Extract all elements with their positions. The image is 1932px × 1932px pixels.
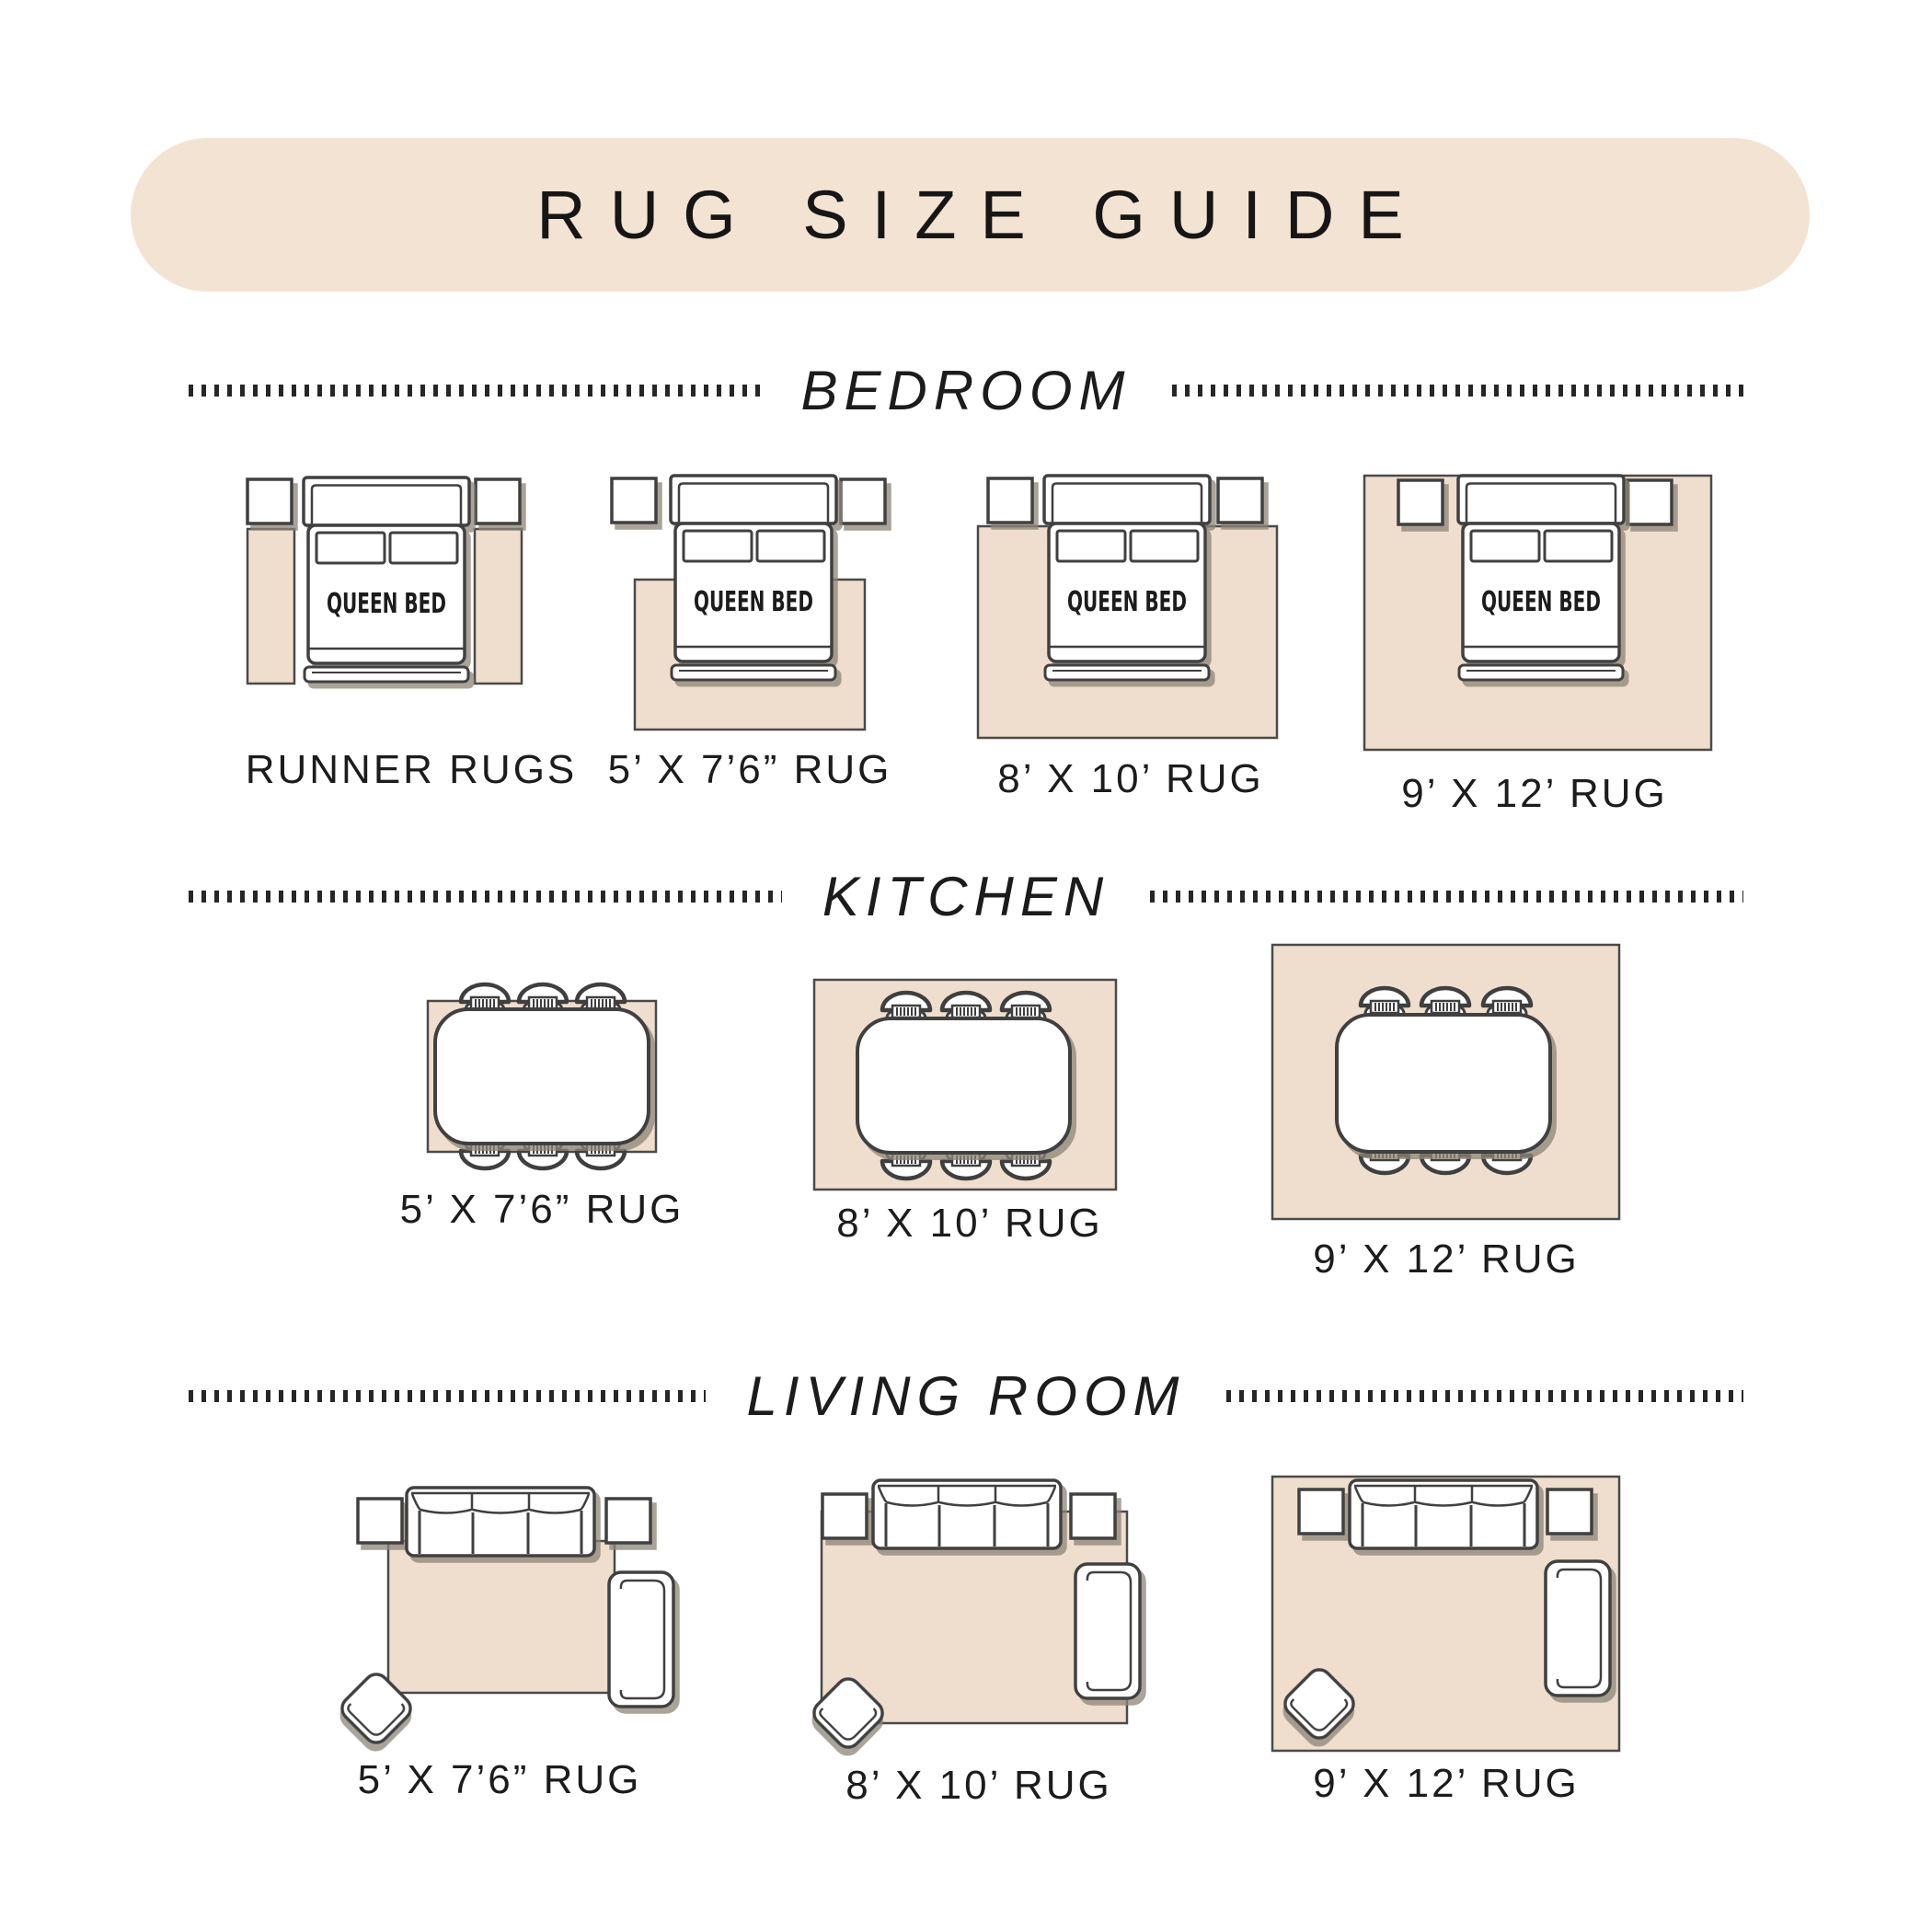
page-title: RUG SIZE GUIDE: [512, 176, 1427, 254]
runner-rug-left: [247, 529, 294, 684]
sofa-icon: [873, 1480, 1061, 1548]
bedroom-5x76-rug-diagram: [598, 465, 902, 741]
runner-rug-right: [475, 529, 522, 684]
bedroom-8x10-rug-diagram: [971, 465, 1293, 750]
kitchen-5x76-rug-diagram: [405, 975, 681, 1187]
rug-size-label: RUNNER RUGS: [246, 747, 578, 793]
kitchen-8x10-rug-diagram: [800, 957, 1132, 1205]
rug-size-label: 5’ X 7’6” RUG: [400, 1187, 684, 1233]
side-table-icon: [358, 1499, 402, 1543]
rug-size-guide-infographic: QUEEN BED: [0, 0, 1932, 1932]
living-room-5x76-rug-diagram: [313, 1467, 699, 1776]
chaise-chair-icon: [609, 1572, 673, 1707]
nightstand-icon: [612, 478, 656, 523]
rug-size-label: 9’ X 12’ RUG: [1313, 1236, 1580, 1282]
chaise-chair-icon: [1546, 1561, 1610, 1696]
dotted-divider-left: [189, 385, 760, 397]
sofa-icon: [1350, 1480, 1537, 1548]
rug-size-label: 5’ X 7’6” RUG: [358, 1757, 642, 1803]
section-title-bedroom: BEDROOM: [800, 359, 1131, 422]
nightstand-icon: [476, 479, 520, 523]
rug-size-label: 8’ X 10’ RUG: [997, 756, 1264, 802]
sofa-icon: [407, 1488, 594, 1556]
section-header-living-room: LIVING ROOM: [189, 1366, 1743, 1425]
nightstand-icon: [1218, 478, 1262, 523]
dotted-divider-right: [1226, 1390, 1743, 1402]
side-table-icon: [822, 1494, 867, 1538]
bedroom-runner-rugs-diagram: [230, 465, 543, 708]
rug-size-label: 8’ X 10’ RUG: [836, 1201, 1103, 1247]
section-header-kitchen: KITCHEN: [189, 867, 1743, 926]
dotted-divider-left: [189, 891, 782, 903]
side-table-icon: [1299, 1489, 1343, 1534]
queen-bed-icon: [671, 476, 836, 680]
chaise-chair-icon: [1075, 1564, 1140, 1698]
rug-size-label: 5’ X 7’6” RUG: [608, 747, 892, 793]
nightstand-icon: [1627, 480, 1672, 524]
nightstand-icon: [247, 479, 292, 523]
section-title-living-room: LIVING ROOM: [746, 1364, 1185, 1428]
nightstand-icon: [1398, 480, 1443, 524]
dining-table-icon: [435, 1009, 649, 1144]
title-banner: RUG SIZE GUIDE: [131, 138, 1810, 292]
dotted-divider-left: [189, 1390, 706, 1402]
nightstand-icon: [841, 479, 885, 523]
side-table-icon: [1071, 1494, 1115, 1538]
rug-size-label: 9’ X 12’ RUG: [1401, 771, 1668, 817]
bedroom-9x12-rug-diagram: [1357, 465, 1725, 759]
section-header-bedroom: BEDROOM: [189, 361, 1743, 420]
living-room-8x10-rug-diagram: [782, 1467, 1168, 1776]
rug-size-label: 9’ X 12’ RUG: [1313, 1761, 1580, 1807]
dotted-divider-right: [1150, 891, 1743, 903]
queen-bed-icon: [304, 477, 469, 682]
area-rug: [388, 1541, 615, 1693]
dotted-divider-right: [1172, 385, 1743, 397]
living-room-9x12-rug-diagram: [1260, 1467, 1647, 1776]
kitchen-9x12-rug-diagram: [1260, 925, 1628, 1237]
dining-table-icon: [857, 1018, 1070, 1153]
section-title-kitchen: KITCHEN: [822, 865, 1110, 928]
side-table-icon: [606, 1499, 650, 1543]
side-table-icon: [1547, 1489, 1592, 1534]
rug-size-label: 8’ X 10’ RUG: [845, 1763, 1112, 1809]
queen-bed-icon: [1044, 476, 1210, 680]
dining-table-icon: [1337, 1015, 1550, 1152]
nightstand-icon: [988, 478, 1032, 523]
queen-bed-icon: [1458, 476, 1624, 680]
